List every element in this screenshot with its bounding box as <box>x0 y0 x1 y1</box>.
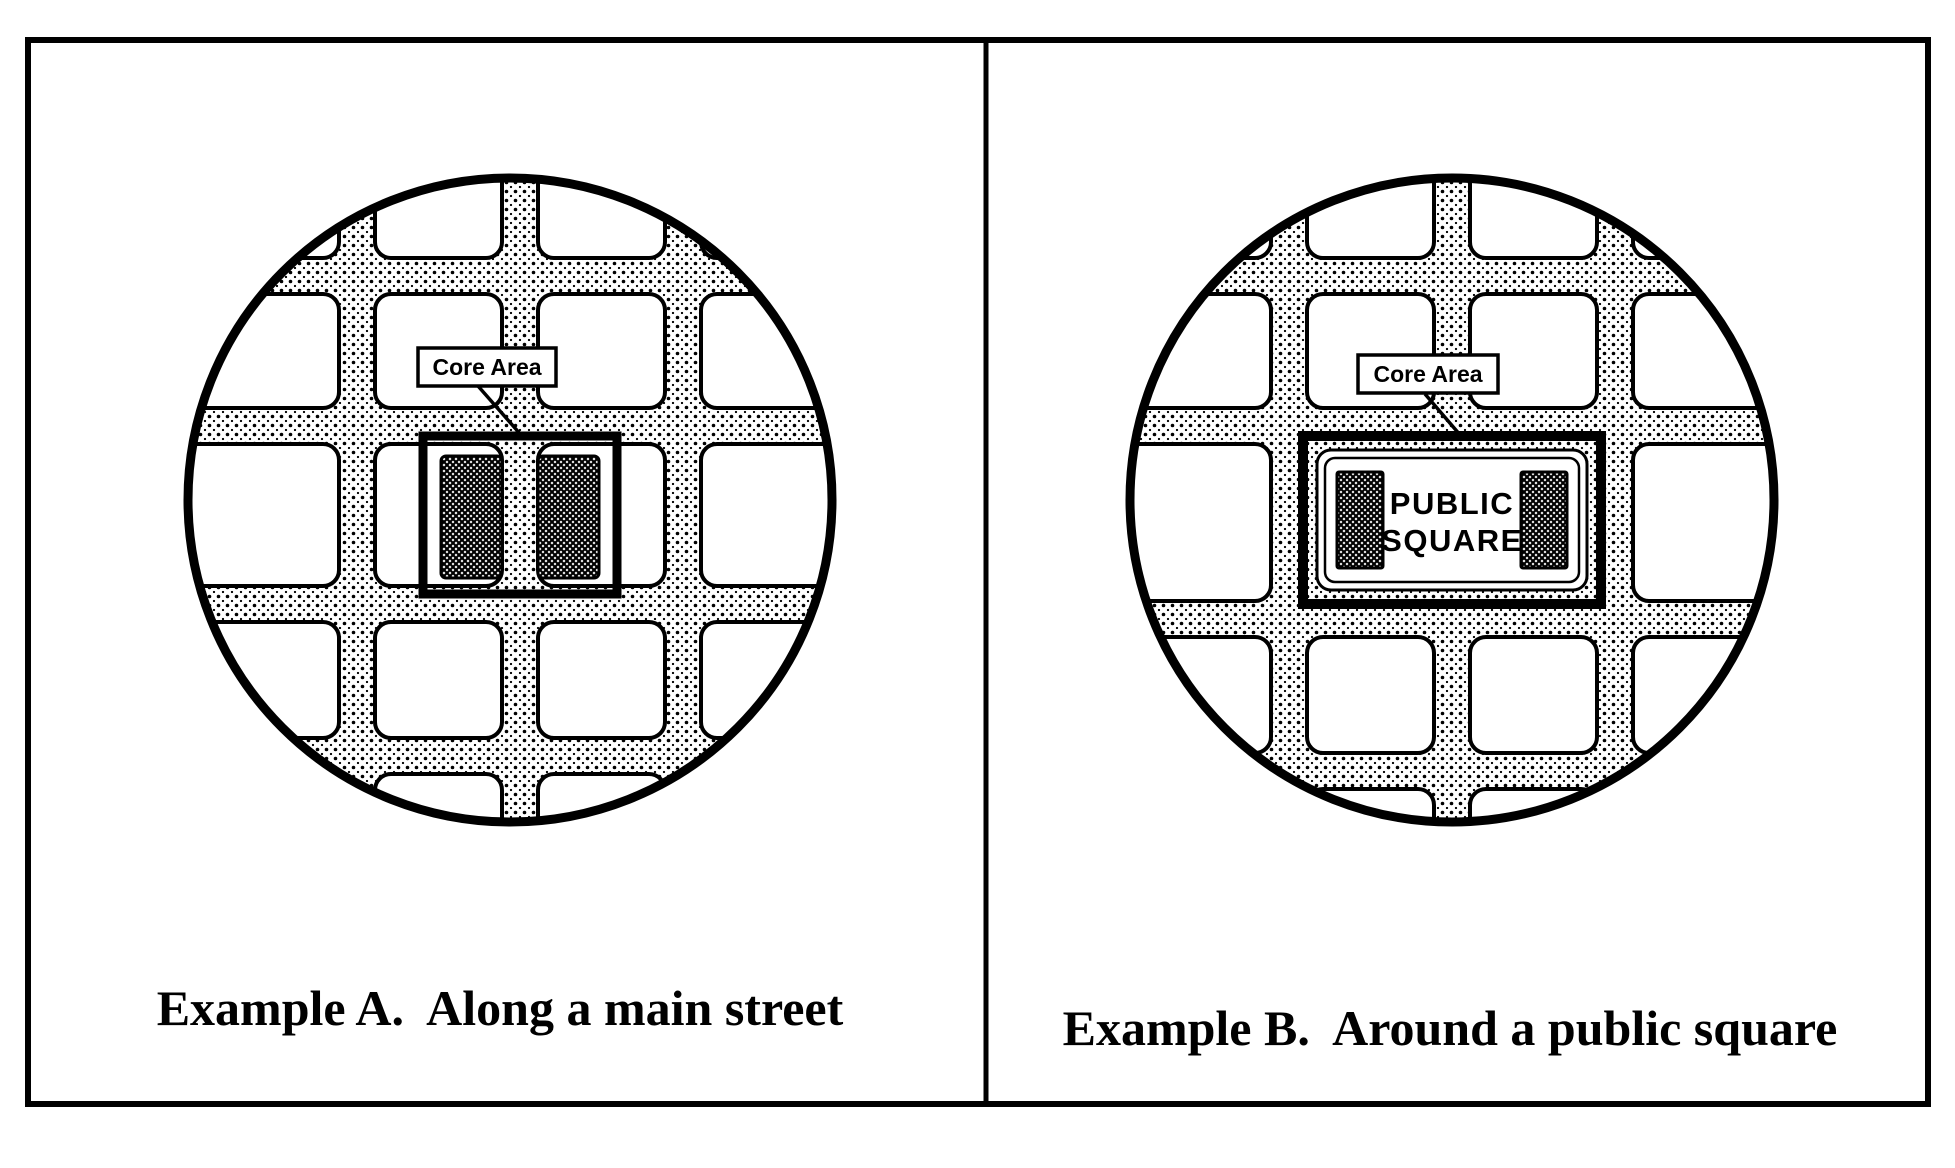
city-block <box>140 774 339 880</box>
public-square-label-line2: SQUARE <box>1381 523 1523 558</box>
city-block <box>1080 120 1271 258</box>
city-block <box>140 120 339 258</box>
core-area-b: PUBLIC SQUARE <box>1303 436 1601 604</box>
core-block-left-a <box>441 456 502 578</box>
city-block <box>1080 444 1271 601</box>
core-area-label-a: Core Area <box>432 354 541 380</box>
core-area-label-b: Core Area <box>1373 361 1482 387</box>
city-block <box>1633 789 1830 880</box>
panel-b-map: PUBLIC SQUARE Core Area <box>1080 120 1830 880</box>
core-block-right-b <box>1521 472 1567 568</box>
city-block <box>1633 294 1830 408</box>
caption-example-b: Example B. Around a public square <box>1063 1000 1838 1056</box>
city-block <box>375 774 502 880</box>
city-block <box>1080 789 1271 880</box>
city-block <box>140 444 339 586</box>
city-block <box>1080 294 1271 408</box>
city-block <box>1470 789 1597 880</box>
city-block <box>1307 637 1434 753</box>
city-block <box>538 622 665 738</box>
city-block <box>140 294 339 408</box>
city-block <box>1633 120 1830 258</box>
public-square-label-line1: PUBLIC <box>1390 486 1514 521</box>
city-block <box>701 622 880 738</box>
scanned-figure-page: Core Area Example A. Along a main street… <box>0 0 1955 1168</box>
city-block <box>701 774 880 880</box>
figure-svg: Core Area Example A. Along a main street… <box>0 0 1955 1168</box>
city-block <box>1633 444 1830 601</box>
core-block-left-b <box>1337 472 1383 568</box>
city-block <box>701 120 880 258</box>
city-block <box>375 622 502 738</box>
city-block <box>1080 637 1271 753</box>
panel-a-map: Core Area <box>140 120 880 880</box>
city-block <box>1307 789 1434 880</box>
city-block <box>701 444 880 586</box>
caption-example-a: Example A. Along a main street <box>157 980 844 1036</box>
core-block-right-a <box>538 456 599 578</box>
city-block <box>1470 637 1597 753</box>
